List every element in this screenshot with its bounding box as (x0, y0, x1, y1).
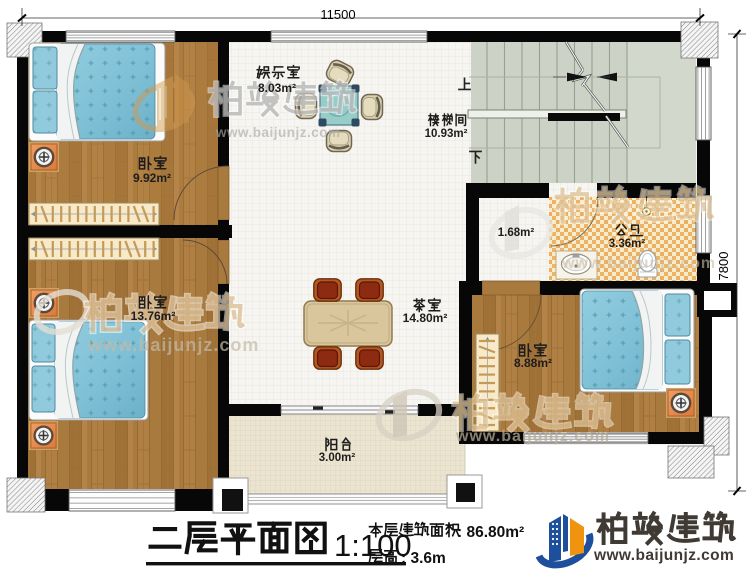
svg-text:www.baijunjz.com: www.baijunjz.com (593, 547, 734, 564)
svg-text:: 3.6m: : 3.6m (401, 550, 446, 567)
svg-text:11500: 11500 (320, 7, 355, 22)
svg-text:www.baijunjz.com: www.baijunjz.com (215, 125, 341, 140)
svg-text:www.baijunjz.com: www.baijunjz.com (561, 255, 716, 272)
svg-text:3.00m²: 3.00m² (319, 452, 356, 464)
svg-text:8.88m²: 8.88m² (514, 356, 552, 370)
svg-text:1.68m²: 1.68m² (498, 227, 535, 239)
svg-text:www.baijunjz.com: www.baijunjz.com (87, 335, 259, 355)
svg-text:www.baijunjz.com: www.baijunjz.com (455, 428, 610, 445)
svg-text:13.76m²: 13.76m² (131, 309, 176, 323)
svg-text:7800: 7800 (716, 252, 731, 281)
svg-text:: 86.80m²: : 86.80m² (457, 524, 524, 541)
svg-text:10.93m²: 10.93m² (425, 128, 468, 140)
svg-text:9.92m²: 9.92m² (133, 171, 171, 185)
svg-text:8.03m²: 8.03m² (258, 81, 296, 95)
svg-text:3.36m²: 3.36m² (609, 238, 646, 250)
svg-text:14.80m²: 14.80m² (403, 311, 448, 325)
